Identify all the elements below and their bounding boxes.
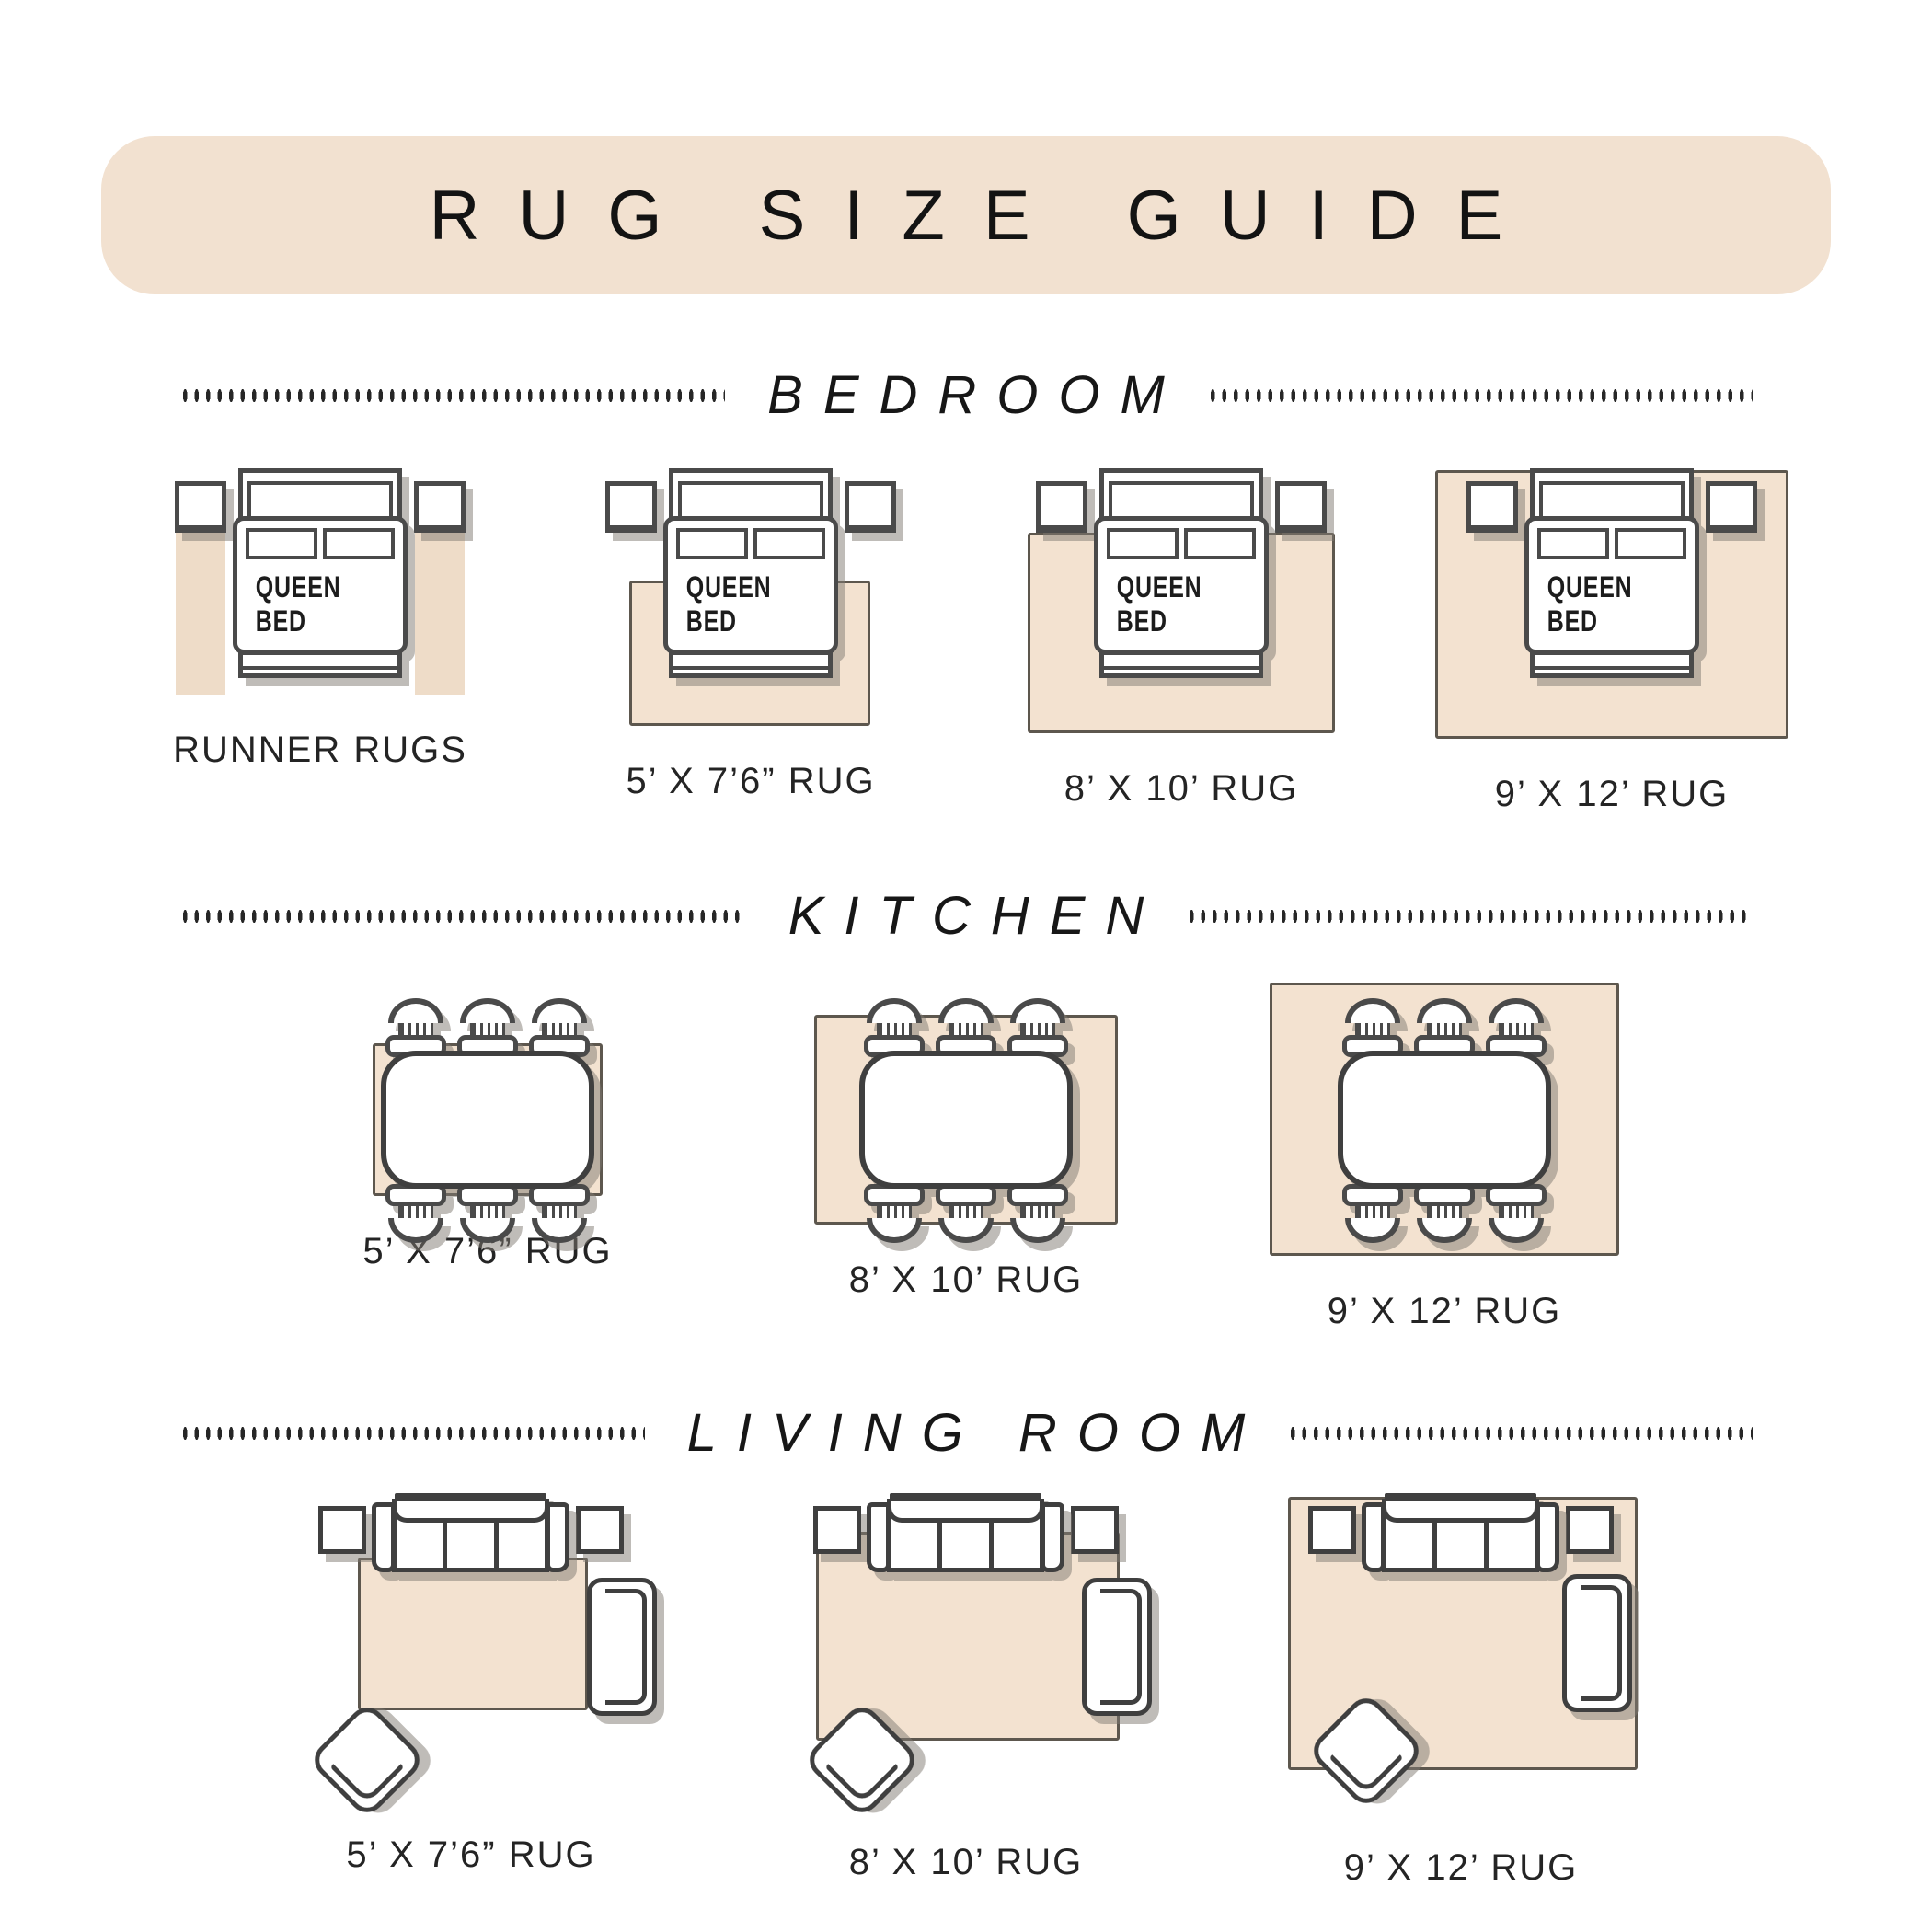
queen-bed-icon: QUEEN BED bbox=[233, 468, 408, 680]
bedroom-header: BEDROOM bbox=[179, 364, 1753, 426]
sofa-icon bbox=[372, 1493, 569, 1572]
sofa-arm-left bbox=[1362, 1502, 1386, 1572]
chair-back bbox=[867, 1218, 922, 1243]
pillow-icon bbox=[1615, 528, 1686, 559]
chair-slats bbox=[877, 1206, 912, 1218]
bedroom-scene: QUEEN BED bbox=[136, 457, 504, 761]
diagram-caption: 8’ X 10’ RUG bbox=[1064, 768, 1298, 810]
queen-bed-icon: QUEEN BED bbox=[663, 468, 838, 680]
kitchen-diagram-5x76: 5’ X 7’6” RUG bbox=[294, 961, 681, 1272]
chair-back bbox=[388, 998, 443, 1023]
bed-label: QUEEN BED bbox=[1529, 559, 1695, 650]
chair-slats bbox=[1427, 1023, 1462, 1035]
pillow-icon bbox=[1184, 528, 1256, 559]
diagram-caption: 5’ X 7’6” RUG bbox=[626, 761, 875, 802]
dining-set-icon bbox=[294, 961, 681, 1279]
chaise-icon bbox=[1562, 1574, 1632, 1712]
bed-label: QUEEN BED bbox=[237, 559, 403, 650]
pillow-icon bbox=[1107, 528, 1179, 559]
living-diagram-8x10: 8’ X 10’ RUG bbox=[764, 1482, 1168, 1883]
bedroom-scene: QUEEN BED bbox=[1428, 457, 1796, 761]
chair-slats bbox=[949, 1206, 983, 1218]
bed-pillows bbox=[1529, 521, 1695, 559]
chair-back bbox=[938, 998, 994, 1023]
dining-table-icon bbox=[1338, 1051, 1551, 1189]
chair-back bbox=[938, 1218, 994, 1243]
pillow-icon bbox=[246, 528, 317, 559]
chaise-icon bbox=[1082, 1578, 1152, 1716]
side-table-icon bbox=[318, 1506, 366, 1554]
sofa-back bbox=[1382, 1499, 1539, 1523]
kitchen-scene bbox=[294, 961, 681, 1279]
chaise-icon bbox=[587, 1578, 657, 1716]
dining-chair-icon bbox=[526, 998, 592, 1055]
living-scene bbox=[764, 1482, 1168, 1846]
side-table-icon bbox=[813, 1506, 861, 1554]
dining-chair-icon bbox=[1005, 998, 1071, 1055]
dotted-line-right bbox=[1287, 1426, 1753, 1441]
bedroom-scene: QUEEN BED bbox=[997, 457, 1365, 761]
chair-slats bbox=[1355, 1023, 1390, 1035]
sofa-arm-left bbox=[372, 1502, 396, 1572]
sofa-back bbox=[887, 1499, 1044, 1523]
chair-slats bbox=[542, 1023, 577, 1035]
sofa-top-edge bbox=[395, 1493, 546, 1501]
nightstand-icon bbox=[605, 481, 657, 533]
sofa-arm-right bbox=[546, 1502, 569, 1572]
side-table-icon bbox=[1308, 1506, 1356, 1554]
bed-mattress: QUEEN BED bbox=[663, 516, 838, 654]
nightstand-icon bbox=[175, 481, 226, 533]
dotted-line-right bbox=[1186, 909, 1753, 924]
dining-chair-icon bbox=[1483, 998, 1549, 1055]
bedroom-title: BEDROOM bbox=[767, 364, 1185, 426]
sofa-arm-right bbox=[1535, 1502, 1559, 1572]
bedroom-scene: QUEEN BED bbox=[567, 457, 935, 761]
sofa-cushion bbox=[989, 1517, 1040, 1568]
bed-foot bbox=[1530, 650, 1694, 678]
queen-bed-icon: QUEEN BED bbox=[1524, 468, 1699, 680]
sofa-top-edge bbox=[890, 1493, 1041, 1501]
chair-back bbox=[867, 998, 922, 1023]
pillow-icon bbox=[753, 528, 825, 559]
pillow-icon bbox=[323, 528, 395, 559]
chair-slats bbox=[398, 1206, 433, 1218]
bed-mattress: QUEEN BED bbox=[1094, 516, 1269, 654]
dining-chair-icon bbox=[1340, 998, 1406, 1055]
chair-back bbox=[532, 1218, 587, 1243]
sofa-arm-right bbox=[1041, 1502, 1064, 1572]
dining-table-icon bbox=[381, 1051, 594, 1189]
bed-pillows bbox=[1098, 521, 1264, 559]
sofa-icon bbox=[867, 1493, 1064, 1572]
chair-back bbox=[1345, 998, 1400, 1023]
chair-slats bbox=[949, 1023, 983, 1035]
accent-chair-icon bbox=[307, 1700, 427, 1820]
chair-back bbox=[1417, 1218, 1472, 1243]
kitchen-scene bbox=[1251, 961, 1638, 1279]
chair-slats bbox=[398, 1023, 433, 1035]
runner-rug-right bbox=[415, 533, 465, 695]
bedroom-diagram-runner-rugs: QUEEN BED RUNNER RUGS bbox=[136, 457, 504, 771]
bedroom-diagram-5x76: QUEEN BED 5’ X 7’6” RUG bbox=[567, 457, 935, 802]
kitchen-scene bbox=[773, 961, 1159, 1279]
chair-slats bbox=[1020, 1023, 1055, 1035]
dining-chair-icon bbox=[1411, 998, 1478, 1055]
dining-chair-icon bbox=[1005, 1186, 1071, 1243]
kitchen-header: KITCHEN bbox=[179, 885, 1753, 947]
dining-chair-icon bbox=[933, 998, 999, 1055]
title-banner: RUG SIZE GUIDE bbox=[101, 136, 1831, 294]
living-diagram-9x12: 9’ X 12’ RUG bbox=[1259, 1482, 1663, 1889]
section-bedroom: BEDROOM bbox=[0, 364, 1932, 815]
page-title: RUG SIZE GUIDE bbox=[430, 176, 1542, 256]
bedroom-diagram-8x10: QUEEN BED 8’ X 10’ RUG bbox=[997, 457, 1365, 810]
sofa-seats bbox=[392, 1517, 549, 1572]
kitchen-diagram-9x12: 9’ X 12’ RUG bbox=[1251, 961, 1638, 1332]
chair-back bbox=[1010, 998, 1065, 1023]
chair-slats bbox=[470, 1206, 505, 1218]
sofa-cushion bbox=[937, 1517, 988, 1568]
chair-back bbox=[1417, 998, 1472, 1023]
chair-back bbox=[1010, 1218, 1065, 1243]
sofa-top-edge bbox=[1385, 1493, 1536, 1501]
chair-slats bbox=[470, 1023, 505, 1035]
pillow-icon bbox=[1537, 528, 1609, 559]
sofa-cushion bbox=[891, 1517, 937, 1568]
diagram-caption: 8’ X 10’ RUG bbox=[849, 1842, 1083, 1883]
bed-mattress: QUEEN BED bbox=[233, 516, 408, 654]
dining-table-icon bbox=[859, 1051, 1073, 1189]
kitchen-title: KITCHEN bbox=[788, 885, 1165, 947]
chair-back bbox=[460, 1218, 515, 1243]
chair-back bbox=[388, 1218, 443, 1243]
living-room-header: LIVING ROOM bbox=[179, 1402, 1753, 1464]
kitchen-row: 5’ X 7’6” RUG 8’ X 10’ RUG bbox=[294, 961, 1638, 1332]
bed-foot bbox=[238, 650, 402, 678]
nightstand-icon bbox=[1036, 481, 1087, 533]
sofa-cushion bbox=[443, 1517, 493, 1568]
dining-chair-icon bbox=[383, 1186, 449, 1243]
sofa-arm-left bbox=[867, 1502, 891, 1572]
rug bbox=[358, 1558, 588, 1710]
nightstand-icon bbox=[1275, 481, 1327, 533]
chair-slats bbox=[877, 1023, 912, 1035]
living-room-row: 5’ X 7’6” RUG 8’ bbox=[269, 1482, 1663, 1889]
dotted-line-left bbox=[179, 1426, 645, 1441]
living-room-title: LIVING ROOM bbox=[687, 1402, 1266, 1464]
nightstand-icon bbox=[414, 481, 466, 533]
bedroom-row: QUEEN BED RUNNER RUGS bbox=[136, 457, 1796, 815]
runner-rug-left bbox=[176, 533, 225, 695]
diagram-caption: 9’ X 12’ RUG bbox=[1495, 774, 1729, 815]
bed-foot bbox=[669, 650, 833, 678]
chair-slats bbox=[1427, 1206, 1462, 1218]
diagram-caption: 9’ X 12’ RUG bbox=[1344, 1847, 1578, 1889]
queen-bed-icon: QUEEN BED bbox=[1094, 468, 1269, 680]
bed-pillows bbox=[668, 521, 834, 559]
dining-set-icon bbox=[773, 961, 1159, 1279]
living-scene bbox=[1259, 1482, 1663, 1846]
dining-chair-icon bbox=[454, 998, 521, 1055]
dining-chair-icon bbox=[383, 998, 449, 1055]
nightstand-icon bbox=[845, 481, 896, 533]
bed-label: QUEEN BED bbox=[668, 559, 834, 650]
dotted-line-left bbox=[179, 909, 746, 924]
chair-slats bbox=[1499, 1206, 1534, 1218]
chair-back bbox=[1489, 998, 1544, 1023]
bedroom-diagram-9x12: QUEEN BED 9’ X 12’ RUG bbox=[1428, 457, 1796, 815]
dining-set-icon bbox=[1251, 961, 1638, 1279]
nightstand-icon bbox=[1466, 481, 1518, 533]
sofa-cushion bbox=[1432, 1517, 1483, 1568]
side-table-icon bbox=[1071, 1506, 1119, 1554]
living-scene bbox=[269, 1482, 673, 1846]
chair-back bbox=[532, 998, 587, 1023]
dotted-line-left bbox=[179, 388, 725, 403]
side-table-icon bbox=[1566, 1506, 1614, 1554]
bed-label: QUEEN BED bbox=[1098, 559, 1264, 650]
chair-slats bbox=[542, 1206, 577, 1218]
dining-chair-icon bbox=[861, 998, 927, 1055]
sofa-cushion bbox=[397, 1517, 443, 1568]
bed-mattress: QUEEN BED bbox=[1524, 516, 1699, 654]
dining-chair-icon bbox=[933, 1186, 999, 1243]
dining-chair-icon bbox=[526, 1186, 592, 1243]
sofa-cushion bbox=[494, 1517, 545, 1568]
dining-chair-icon bbox=[454, 1186, 521, 1243]
kitchen-diagram-8x10: 8’ X 10’ RUG bbox=[773, 961, 1159, 1301]
sofa-cushion bbox=[1484, 1517, 1535, 1568]
side-table-icon bbox=[576, 1506, 624, 1554]
chair-back bbox=[1345, 1218, 1400, 1243]
living-diagram-5x76: 5’ X 7’6” RUG bbox=[269, 1482, 673, 1876]
bed-foot bbox=[1099, 650, 1263, 678]
sofa-cushion bbox=[1386, 1517, 1432, 1568]
nightstand-icon bbox=[1706, 481, 1757, 533]
sofa-back bbox=[392, 1499, 549, 1523]
chair-back bbox=[1489, 1218, 1544, 1243]
dining-chair-icon bbox=[1411, 1186, 1478, 1243]
sofa-seats bbox=[887, 1517, 1044, 1572]
diagram-caption: 9’ X 12’ RUG bbox=[1328, 1291, 1561, 1332]
sofa-icon bbox=[1362, 1493, 1559, 1572]
dining-chair-icon bbox=[1483, 1186, 1549, 1243]
pillow-icon bbox=[676, 528, 748, 559]
dining-chair-icon bbox=[1340, 1186, 1406, 1243]
bed-pillows bbox=[237, 521, 403, 559]
chair-slats bbox=[1499, 1023, 1534, 1035]
section-kitchen: KITCHEN 5’ X 7’6” RUG bbox=[0, 885, 1932, 1332]
chair-slats bbox=[1355, 1206, 1390, 1218]
chair-slats bbox=[1020, 1206, 1055, 1218]
section-living-room: LIVING ROOM bbox=[0, 1402, 1932, 1889]
chair-back bbox=[460, 998, 515, 1023]
dotted-line-right bbox=[1207, 388, 1753, 403]
sofa-seats bbox=[1382, 1517, 1539, 1572]
rug-size-guide-page: RUG SIZE GUIDE BEDROOM bbox=[0, 0, 1932, 1932]
dining-chair-icon bbox=[861, 1186, 927, 1243]
